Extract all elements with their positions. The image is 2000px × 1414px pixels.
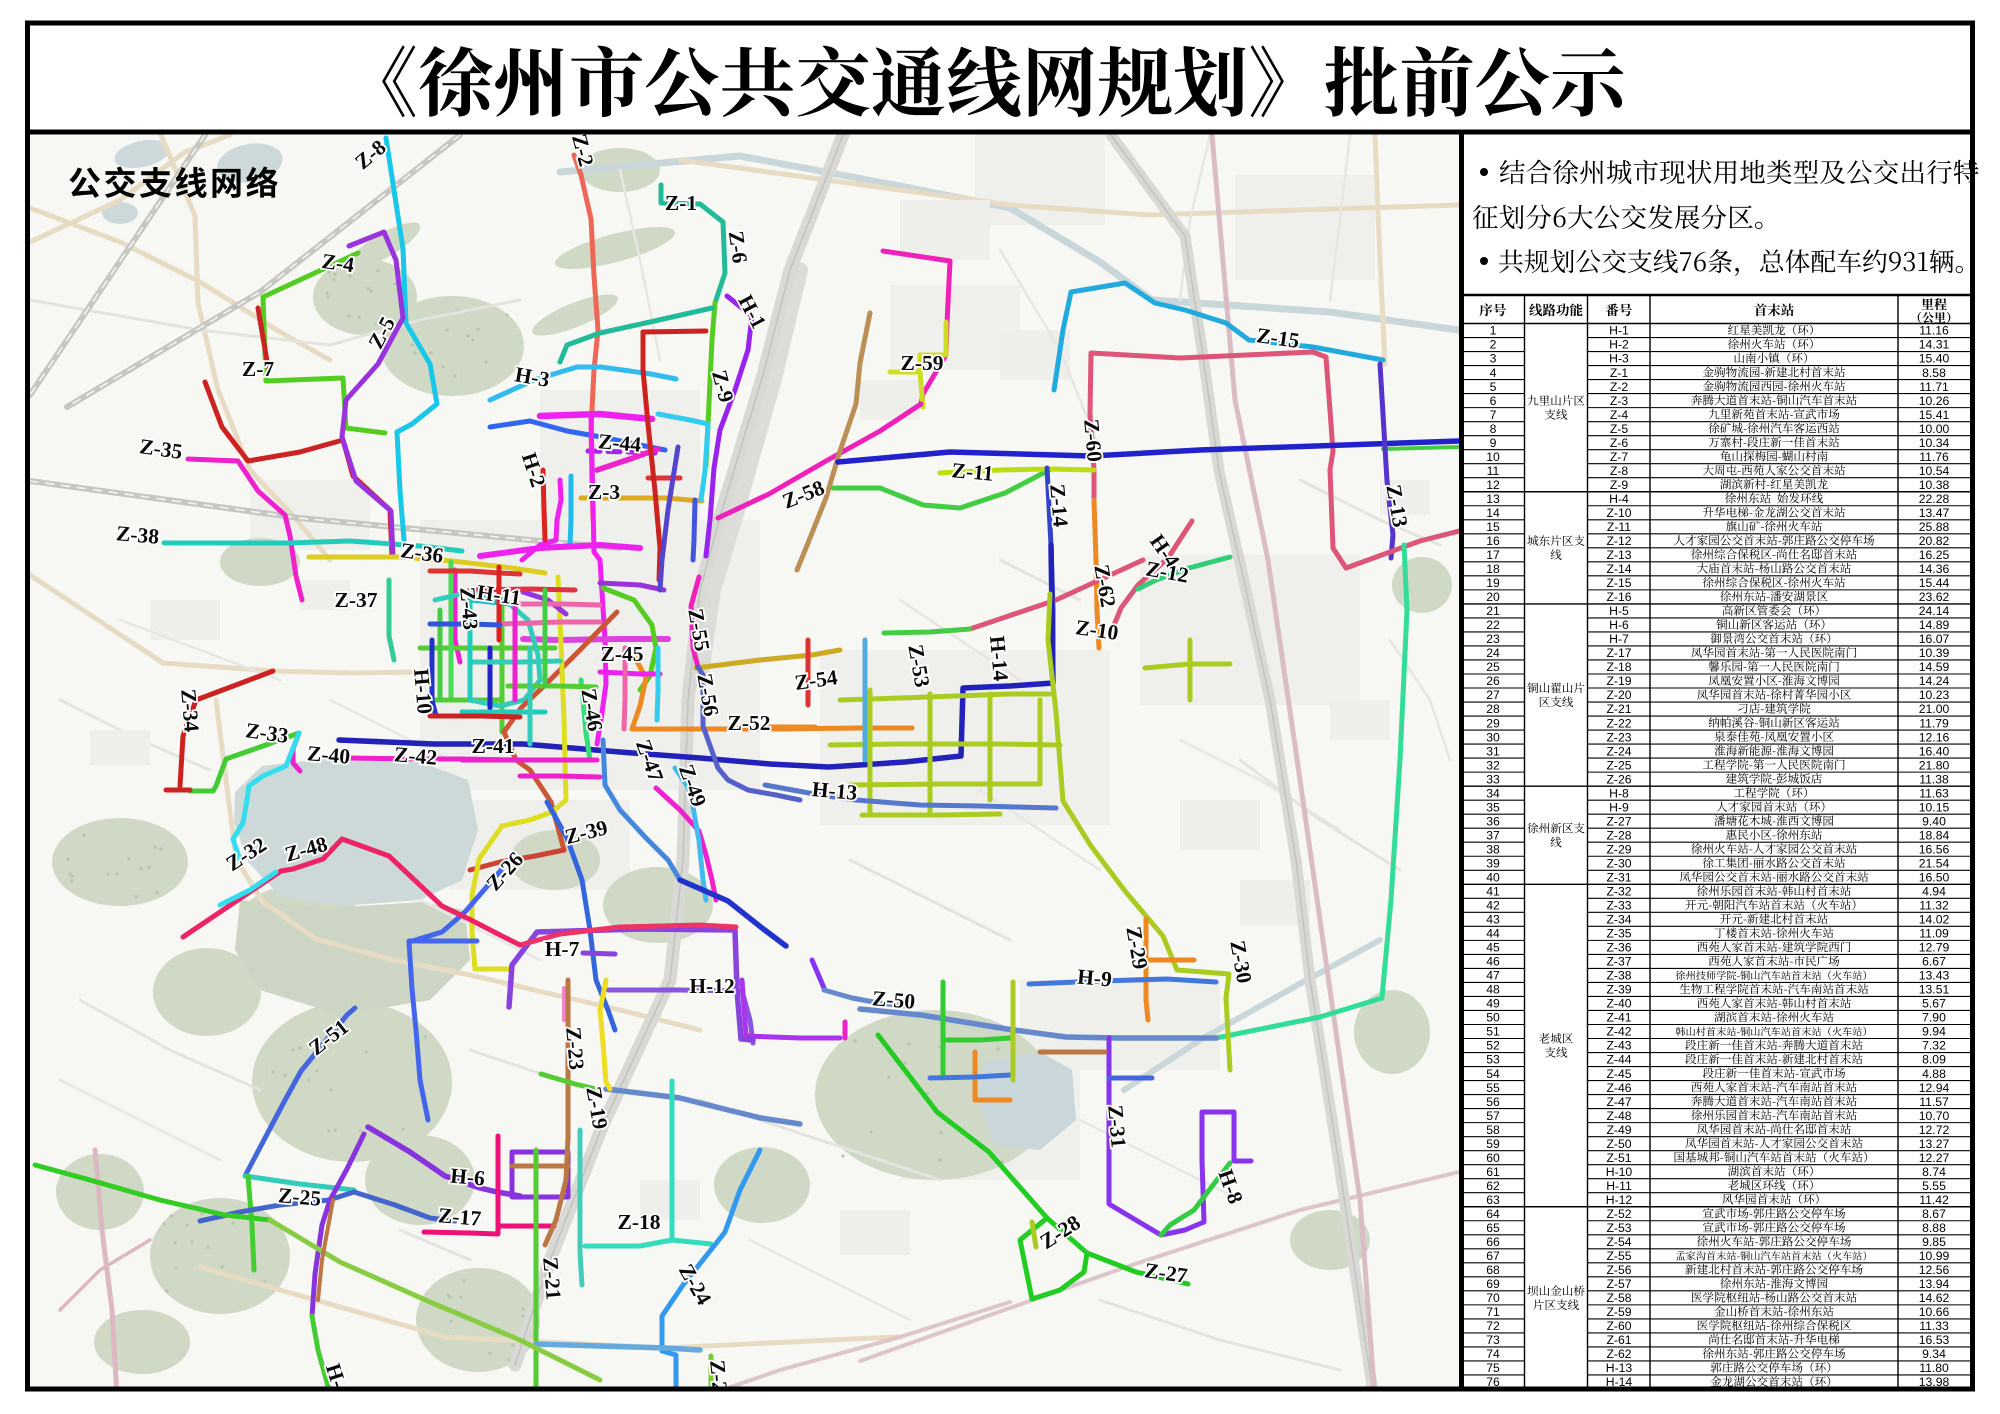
svg-text:H-12: H-12 [1606,1193,1633,1207]
svg-text:25: 25 [1486,660,1500,674]
svg-text:9.94: 9.94 [1922,1025,1946,1039]
svg-text:Z-21: Z-21 [538,1256,566,1301]
svg-text:54: 54 [1486,1067,1500,1081]
svg-text:5: 5 [1490,380,1497,394]
svg-text:68: 68 [1486,1263,1500,1277]
svg-text:11.63: 11.63 [1919,786,1949,800]
svg-text:22.28: 22.28 [1919,492,1950,506]
svg-text:4.94: 4.94 [1922,885,1946,899]
svg-text:Z-33: Z-33 [1606,899,1631,913]
svg-text:27: 27 [1486,688,1500,702]
svg-text:14: 14 [1486,506,1500,520]
svg-text:13: 13 [1486,492,1500,506]
svg-text:11.33: 11.33 [1919,1319,1949,1333]
svg-text:10.66: 10.66 [1919,1305,1950,1319]
svg-text:16.50: 16.50 [1919,871,1950,885]
svg-text:Z-43: Z-43 [1606,1039,1631,1053]
svg-text:11: 11 [1487,464,1500,478]
svg-text:35: 35 [1486,800,1500,814]
svg-text:24.14: 24.14 [1919,604,1950,618]
svg-text:4: 4 [1490,366,1497,380]
svg-text:Z-4: Z-4 [320,249,356,277]
svg-text:Z-45: Z-45 [601,642,644,666]
svg-text:12.79: 12.79 [1919,941,1950,955]
svg-text:Z-58: Z-58 [1606,1291,1631,1305]
svg-text:Z-7: Z-7 [1610,450,1629,464]
svg-text:48: 48 [1486,983,1500,997]
svg-text:2: 2 [1490,338,1497,352]
svg-text:Z-56: Z-56 [1606,1263,1631,1277]
svg-text:Z-14: Z-14 [1606,562,1631,576]
svg-text:Z-23: Z-23 [1606,730,1631,744]
svg-text:59: 59 [1486,1137,1500,1151]
svg-text:Z-24: Z-24 [1606,744,1631,758]
svg-text:65: 65 [1486,1221,1500,1235]
svg-text:66: 66 [1486,1235,1500,1249]
svg-text:3: 3 [1490,352,1497,366]
svg-text:55: 55 [1486,1081,1500,1095]
svg-text:H-7: H-7 [545,937,580,961]
svg-text:37: 37 [1486,828,1500,842]
svg-text:22: 22 [1486,618,1500,632]
svg-text:Z-18: Z-18 [1606,660,1631,674]
svg-text:36: 36 [1486,814,1500,828]
svg-text:10.70: 10.70 [1919,1109,1950,1123]
svg-text:Z-34: Z-34 [1606,913,1631,927]
svg-text:5.67: 5.67 [1922,997,1946,1011]
svg-text:Z-59: Z-59 [1606,1305,1631,1319]
svg-text:11.57: 11.57 [1919,1095,1949,1109]
svg-text:Z-50: Z-50 [871,986,916,1014]
svg-text:Z-42: Z-42 [393,742,438,770]
svg-text:69: 69 [1486,1277,1500,1291]
svg-text:9.34: 9.34 [1922,1347,1946,1361]
svg-text:Z-3: Z-3 [588,480,621,504]
svg-text:11.79: 11.79 [1919,716,1949,730]
svg-text:31: 31 [1486,744,1500,758]
svg-text:11.71: 11.71 [1919,380,1949,394]
svg-text:H-14: H-14 [985,635,1013,683]
svg-text:Z-41: Z-41 [1606,1011,1631,1025]
svg-text:71: 71 [1486,1305,1500,1319]
svg-text:Z-23: Z-23 [561,1026,589,1071]
svg-text:6.67: 6.67 [1922,955,1946,969]
svg-text:16.40: 16.40 [1919,744,1950,758]
svg-text:67: 67 [1486,1249,1500,1263]
svg-text:H-13: H-13 [811,777,859,805]
svg-text:41: 41 [1486,885,1500,899]
svg-text:H-7: H-7 [1609,632,1629,646]
svg-text:Z-8: Z-8 [1610,464,1629,478]
svg-text:Z-9: Z-9 [1610,478,1629,492]
svg-text:Z-31: Z-31 [1606,871,1631,885]
svg-text:13.94: 13.94 [1919,1277,1950,1291]
svg-text:14.02: 14.02 [1919,913,1950,927]
svg-text:Z-28: Z-28 [1606,828,1631,842]
svg-text:57: 57 [1486,1109,1500,1123]
svg-text:70: 70 [1486,1291,1500,1305]
svg-text:63: 63 [1486,1193,1500,1207]
svg-text:10.34: 10.34 [1919,436,1950,450]
svg-text:8.88: 8.88 [1922,1221,1946,1235]
svg-text:29: 29 [1486,716,1500,730]
svg-text:21.00: 21.00 [1919,702,1950,716]
svg-text:H-6: H-6 [1609,618,1629,632]
svg-text:H-3: H-3 [1609,352,1629,366]
svg-text:10.26: 10.26 [1919,394,1950,408]
svg-text:Z-1: Z-1 [665,191,697,215]
svg-text:61: 61 [1486,1165,1500,1179]
svg-text:Z-30: Z-30 [1606,857,1631,871]
svg-text:11.16: 11.16 [1919,324,1949,338]
svg-text:Z-29: Z-29 [1606,842,1631,856]
svg-text:12.72: 12.72 [1919,1123,1950,1137]
svg-text:8.67: 8.67 [1922,1207,1946,1221]
svg-text:15: 15 [1486,520,1500,534]
svg-text:12.27: 12.27 [1919,1151,1950,1165]
svg-text:51: 51 [1486,1025,1500,1039]
svg-text:8.74: 8.74 [1922,1165,1946,1179]
svg-text:24: 24 [1486,646,1500,660]
svg-text:13.43: 13.43 [1919,969,1950,983]
svg-text:11.80: 11.80 [1919,1361,1949,1375]
svg-text:Z-11: Z-11 [1607,520,1631,534]
svg-text:16.07: 16.07 [1919,632,1950,646]
svg-text:64: 64 [1486,1207,1500,1221]
svg-text:Z-40: Z-40 [306,741,351,769]
svg-text:26: 26 [1486,674,1500,688]
svg-text:Z-6: Z-6 [1610,436,1629,450]
svg-text:Z-6: Z-6 [724,229,752,265]
svg-text:10.39: 10.39 [1919,646,1950,660]
svg-text:11.32: 11.32 [1919,899,1949,913]
svg-text:25.88: 25.88 [1919,520,1950,534]
svg-text:14.31: 14.31 [1919,338,1950,352]
svg-text:Z-62: Z-62 [1606,1347,1631,1361]
svg-text:H-6: H-6 [449,1164,486,1191]
svg-text:8: 8 [1490,422,1497,436]
svg-text:11.42: 11.42 [1919,1193,1949,1207]
svg-text:5.55: 5.55 [1922,1179,1946,1193]
svg-text:6: 6 [1490,394,1497,408]
svg-text:9.40: 9.40 [1922,814,1946,828]
svg-text:34: 34 [1486,786,1500,800]
svg-text:17: 17 [1486,548,1500,562]
svg-text:Z-39: Z-39 [1606,983,1631,997]
svg-text:40: 40 [1486,871,1500,885]
svg-text:Z-17: Z-17 [1606,646,1631,660]
svg-text:Z-40: Z-40 [1606,997,1631,1011]
svg-text:Z-44: Z-44 [597,429,642,457]
svg-text:H-9: H-9 [1076,965,1113,992]
svg-text:13.47: 13.47 [1919,506,1950,520]
svg-text:11.09: 11.09 [1919,927,1949,941]
svg-text:9.85: 9.85 [1922,1235,1946,1249]
svg-text:Z-50: Z-50 [1606,1137,1631,1151]
svg-text:7: 7 [1490,408,1497,422]
svg-text:H-10: H-10 [1606,1165,1633,1179]
svg-text:Z-45: Z-45 [1606,1067,1631,1081]
svg-text:11.76: 11.76 [1919,450,1949,464]
svg-text:Z-26: Z-26 [1606,772,1631,786]
svg-text:Z-51: Z-51 [1606,1151,1631,1165]
svg-text:62: 62 [1486,1179,1500,1193]
svg-text:Z-37: Z-37 [1606,955,1631,969]
svg-text:Z-36: Z-36 [1606,941,1631,955]
svg-text:74: 74 [1486,1347,1500,1361]
svg-text:44: 44 [1486,927,1500,941]
svg-text:23: 23 [1486,632,1500,646]
svg-text:14.36: 14.36 [1919,562,1950,576]
svg-text:Z-13: Z-13 [1606,548,1631,562]
svg-text:Z-48: Z-48 [1606,1109,1631,1123]
svg-text:Z-22: Z-22 [1606,716,1631,730]
svg-text:16.56: 16.56 [1919,842,1950,856]
svg-text:Z-54: Z-54 [1606,1235,1631,1249]
svg-text:49: 49 [1486,997,1500,1011]
svg-text:45: 45 [1486,941,1500,955]
svg-text:Z-32: Z-32 [1606,885,1631,899]
svg-text:8.58: 8.58 [1922,366,1946,380]
svg-text:H-4: H-4 [1609,492,1629,506]
svg-text:56: 56 [1486,1095,1500,1109]
svg-text:H-2: H-2 [1609,338,1629,352]
svg-text:Z-55: Z-55 [1606,1249,1631,1263]
svg-text:Z-53: Z-53 [1606,1221,1631,1235]
svg-text:Z-25: Z-25 [277,1183,322,1211]
svg-text:Z-25: Z-25 [1606,758,1631,772]
svg-text:Z-27: Z-27 [1606,814,1631,828]
svg-text:Z-3: Z-3 [1610,394,1629,408]
svg-text:53: 53 [1486,1053,1500,1067]
svg-text:18: 18 [1486,562,1500,576]
svg-text:Z-16: Z-16 [1606,590,1631,604]
svg-text:Z-46: Z-46 [1606,1081,1631,1095]
svg-text:H-5: H-5 [1609,604,1629,618]
svg-text:Z-52: Z-52 [728,711,771,735]
svg-text:15.41: 15.41 [1919,408,1950,422]
svg-text:20: 20 [1486,590,1500,604]
svg-text:Z-34: Z-34 [176,688,204,733]
svg-text:12: 12 [1486,478,1500,492]
svg-text:Z-10: Z-10 [1606,506,1631,520]
svg-text:H-8: H-8 [1609,786,1629,800]
svg-text:Z-49: Z-49 [1606,1123,1631,1137]
svg-text:16: 16 [1486,534,1500,548]
svg-text:Z-57: Z-57 [1606,1277,1631,1291]
svg-text:60: 60 [1486,1151,1500,1165]
svg-text:14.59: 14.59 [1919,660,1950,674]
svg-text:H-13: H-13 [1606,1361,1633,1375]
svg-text:9: 9 [1490,436,1497,450]
svg-text:10.38: 10.38 [1919,478,1950,492]
svg-text:12.56: 12.56 [1919,1263,1950,1277]
svg-text:46: 46 [1486,955,1500,969]
svg-text:Z-38: Z-38 [1606,969,1631,983]
svg-text:Z-12: Z-12 [1606,534,1631,548]
svg-text:15.44: 15.44 [1919,576,1950,590]
svg-text:14.89: 14.89 [1919,618,1950,632]
svg-text:10.00: 10.00 [1919,422,1950,436]
svg-text:14.24: 14.24 [1919,674,1950,688]
svg-text:75: 75 [1486,1361,1500,1375]
svg-text:13.51: 13.51 [1919,983,1950,997]
svg-text:21.54: 21.54 [1919,857,1950,871]
svg-text:58: 58 [1486,1123,1500,1137]
svg-text:10.99: 10.99 [1919,1249,1950,1263]
svg-text:Z-59: Z-59 [901,351,944,375]
svg-text:11.38: 11.38 [1919,772,1949,786]
svg-text:30: 30 [1486,730,1500,744]
svg-text:4.88: 4.88 [1922,1067,1946,1081]
svg-text:Z-42: Z-42 [1606,1025,1631,1039]
svg-text:Z-11: Z-11 [951,458,995,486]
svg-text:47: 47 [1486,969,1500,983]
svg-text:43: 43 [1486,913,1500,927]
svg-text:72: 72 [1486,1319,1500,1333]
svg-text:52: 52 [1486,1039,1500,1053]
svg-text:16.53: 16.53 [1919,1333,1950,1347]
svg-text:Z-31: Z-31 [1103,1104,1131,1149]
svg-text:Z-61: Z-61 [1606,1333,1631,1347]
svg-text:10.23: 10.23 [1919,688,1950,702]
svg-text:Z-21: Z-21 [1606,702,1631,716]
svg-text:Z-47: Z-47 [1606,1095,1631,1109]
svg-text:Z-37: Z-37 [335,588,378,612]
svg-text:10.15: 10.15 [1919,800,1950,814]
svg-text:21: 21 [1486,604,1500,618]
svg-text:Z-14: Z-14 [1045,483,1073,528]
svg-text:Z-44: Z-44 [1606,1053,1631,1067]
svg-text:16.25: 16.25 [1919,548,1950,562]
svg-text:Z-60: Z-60 [1079,418,1107,463]
svg-text:42: 42 [1486,899,1500,913]
svg-text:39: 39 [1486,857,1500,871]
svg-text:H-10: H-10 [409,668,437,715]
svg-text:Z-35: Z-35 [1606,927,1631,941]
svg-text:32: 32 [1486,758,1500,772]
svg-text:13.27: 13.27 [1919,1137,1950,1151]
svg-text:Z-38: Z-38 [115,521,160,549]
svg-text:19: 19 [1486,576,1500,590]
svg-text:18.84: 18.84 [1919,828,1950,842]
svg-text:Z-2: Z-2 [1610,380,1629,394]
svg-text:12.94: 12.94 [1919,1081,1950,1095]
svg-text:10: 10 [1486,450,1500,464]
svg-text:1: 1 [1490,324,1497,338]
svg-text:Z-52: Z-52 [1606,1207,1631,1221]
svg-text:Z-5: Z-5 [1610,422,1629,436]
svg-text:38: 38 [1486,842,1500,856]
svg-text:23.62: 23.62 [1919,590,1950,604]
svg-text:H-1: H-1 [1609,324,1629,338]
svg-text:50: 50 [1486,1011,1500,1025]
svg-text:33: 33 [1486,772,1500,786]
svg-text:Z-4: Z-4 [1610,408,1629,422]
svg-text:8.09: 8.09 [1922,1053,1946,1067]
svg-text:20.82: 20.82 [1919,534,1950,548]
svg-text:Z-15: Z-15 [1606,576,1631,590]
svg-text:Z-20: Z-20 [1606,688,1631,702]
svg-text:Z-1: Z-1 [1610,366,1629,380]
svg-text:Z-17: Z-17 [437,1203,482,1231]
svg-text:Z-19: Z-19 [1606,674,1631,688]
svg-text:10.54: 10.54 [1919,464,1950,478]
svg-text:Z-41: Z-41 [472,734,515,758]
svg-text:15.40: 15.40 [1919,352,1950,366]
svg-text:H-9: H-9 [1609,800,1629,814]
svg-text:12.16: 12.16 [1919,730,1950,744]
svg-text:Z-18: Z-18 [618,1210,661,1234]
svg-text:73: 73 [1486,1333,1500,1347]
svg-text:28: 28 [1486,702,1500,716]
svg-text:Z-7: Z-7 [242,357,275,381]
svg-text:21.80: 21.80 [1919,758,1950,772]
svg-text:H-12: H-12 [689,974,734,998]
svg-text:Z-60: Z-60 [1606,1319,1631,1333]
svg-text:H-11: H-11 [1606,1179,1632,1193]
svg-text:7.90: 7.90 [1922,1011,1946,1025]
svg-text:7.32: 7.32 [1922,1039,1946,1053]
svg-text:14.62: 14.62 [1919,1291,1950,1305]
